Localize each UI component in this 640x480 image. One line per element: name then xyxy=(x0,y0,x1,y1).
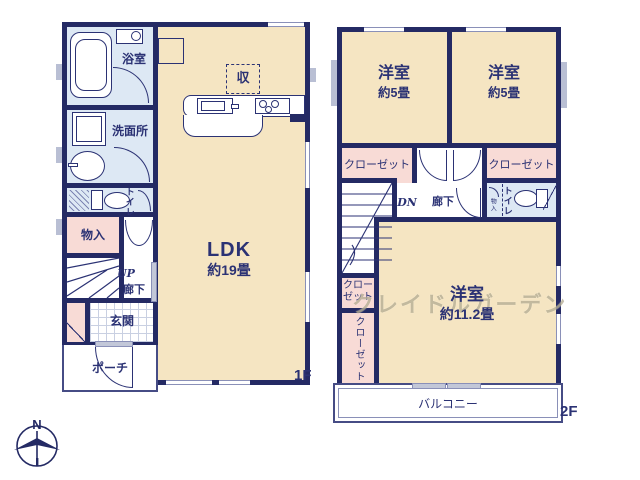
sink-tap-icon xyxy=(68,163,78,167)
window-2f-top-1 xyxy=(364,27,404,32)
window-tab-bath xyxy=(56,64,62,80)
toilet-hatch-1f xyxy=(69,190,89,211)
hallway-1f-label: 廊下 xyxy=(118,284,150,297)
closet-left-label: クローゼット xyxy=(340,159,414,172)
kitchen-island xyxy=(183,115,263,137)
closet-right-label: クローゼット xyxy=(485,159,558,172)
toilet-2f-label: トイレ xyxy=(502,185,513,217)
kitchen-faucet-icon xyxy=(231,104,239,109)
fridge-space-icon xyxy=(158,38,184,64)
bedroom2-size-label: 約5畳 xyxy=(454,86,554,101)
toilet-tank-1f-icon xyxy=(91,190,103,210)
window-tab-toilet-1f xyxy=(56,219,62,235)
balcony-slider-2 xyxy=(447,383,481,389)
closet-tall-label: クローゼット xyxy=(352,316,364,382)
porch-label: ポーチ xyxy=(85,361,135,375)
compass-north-label: N xyxy=(32,417,41,432)
bathroom-label: 浴室 xyxy=(110,52,158,66)
toilet-bowl-2f-icon xyxy=(514,190,538,207)
window-1f-bottom-1 xyxy=(166,380,212,385)
balcony-slider-1 xyxy=(412,383,446,389)
bedroom3-name-label: 洋室 xyxy=(417,285,517,305)
window-tab-washroom xyxy=(56,147,62,163)
ldk-entry-door xyxy=(151,262,157,302)
window-bedroom3-right-1 xyxy=(556,266,561,286)
window-1f-bottom-2 xyxy=(219,380,250,385)
bedroom1-name-label: 洋室 xyxy=(344,64,444,83)
compass-icon: N xyxy=(8,412,66,474)
floor2-label: 2F xyxy=(560,403,590,421)
window-1f-top xyxy=(268,22,304,27)
window-1f-right-lower xyxy=(305,272,310,322)
ldk-size-label: 約19畳 xyxy=(179,262,279,279)
ldk-name-label: LDK xyxy=(179,238,279,262)
stove-burner-2 xyxy=(271,100,279,108)
washroom-label: 洗面所 xyxy=(104,124,156,138)
stairs-up-label: UP xyxy=(112,267,140,280)
stairs-down-label: DN xyxy=(394,196,420,209)
kitchen-storage-label: 収 xyxy=(226,70,260,86)
window-1f-right-upper xyxy=(305,142,310,188)
bedroom1-size-label: 約5畳 xyxy=(344,86,444,101)
hallway-2f-label: 廊下 xyxy=(426,196,460,209)
toilet-storage-label: 物入 xyxy=(488,198,495,212)
bedroom3-size-label: 約11.2畳 xyxy=(417,306,517,323)
window-tab-1f-right xyxy=(310,68,316,82)
bathtub-inner xyxy=(75,39,107,91)
toilet-1f-label: トイレ xyxy=(124,185,135,219)
stove-burner-3 xyxy=(265,106,272,113)
storage-1f-label: 物入 xyxy=(66,228,120,242)
counter-end-wall xyxy=(290,114,305,122)
floor-plan-canvas: 収 浴室 洗面所 トイレ 物入 UP 廊下 玄関 ポーチ LDK 約19畳 1F xyxy=(0,0,640,480)
balcony-label: バルコニー xyxy=(398,397,498,411)
bedroom2-name-label: 洋室 xyxy=(454,64,554,83)
vanity-inner xyxy=(76,116,102,142)
floor1-label: 1F xyxy=(294,367,324,385)
window-tab-bedroom2 xyxy=(561,62,567,108)
toilet-corner-line-2f xyxy=(543,184,557,210)
shoe-storage-diagonal xyxy=(66,322,86,343)
window-2f-top-2 xyxy=(466,27,506,32)
kitchen-sink-inner xyxy=(201,101,225,111)
window-tab-bedroom1 xyxy=(331,60,337,106)
washer-drum-icon xyxy=(131,31,141,41)
entrance-label: 玄関 xyxy=(96,314,148,328)
stairs-down-icon xyxy=(342,183,392,273)
